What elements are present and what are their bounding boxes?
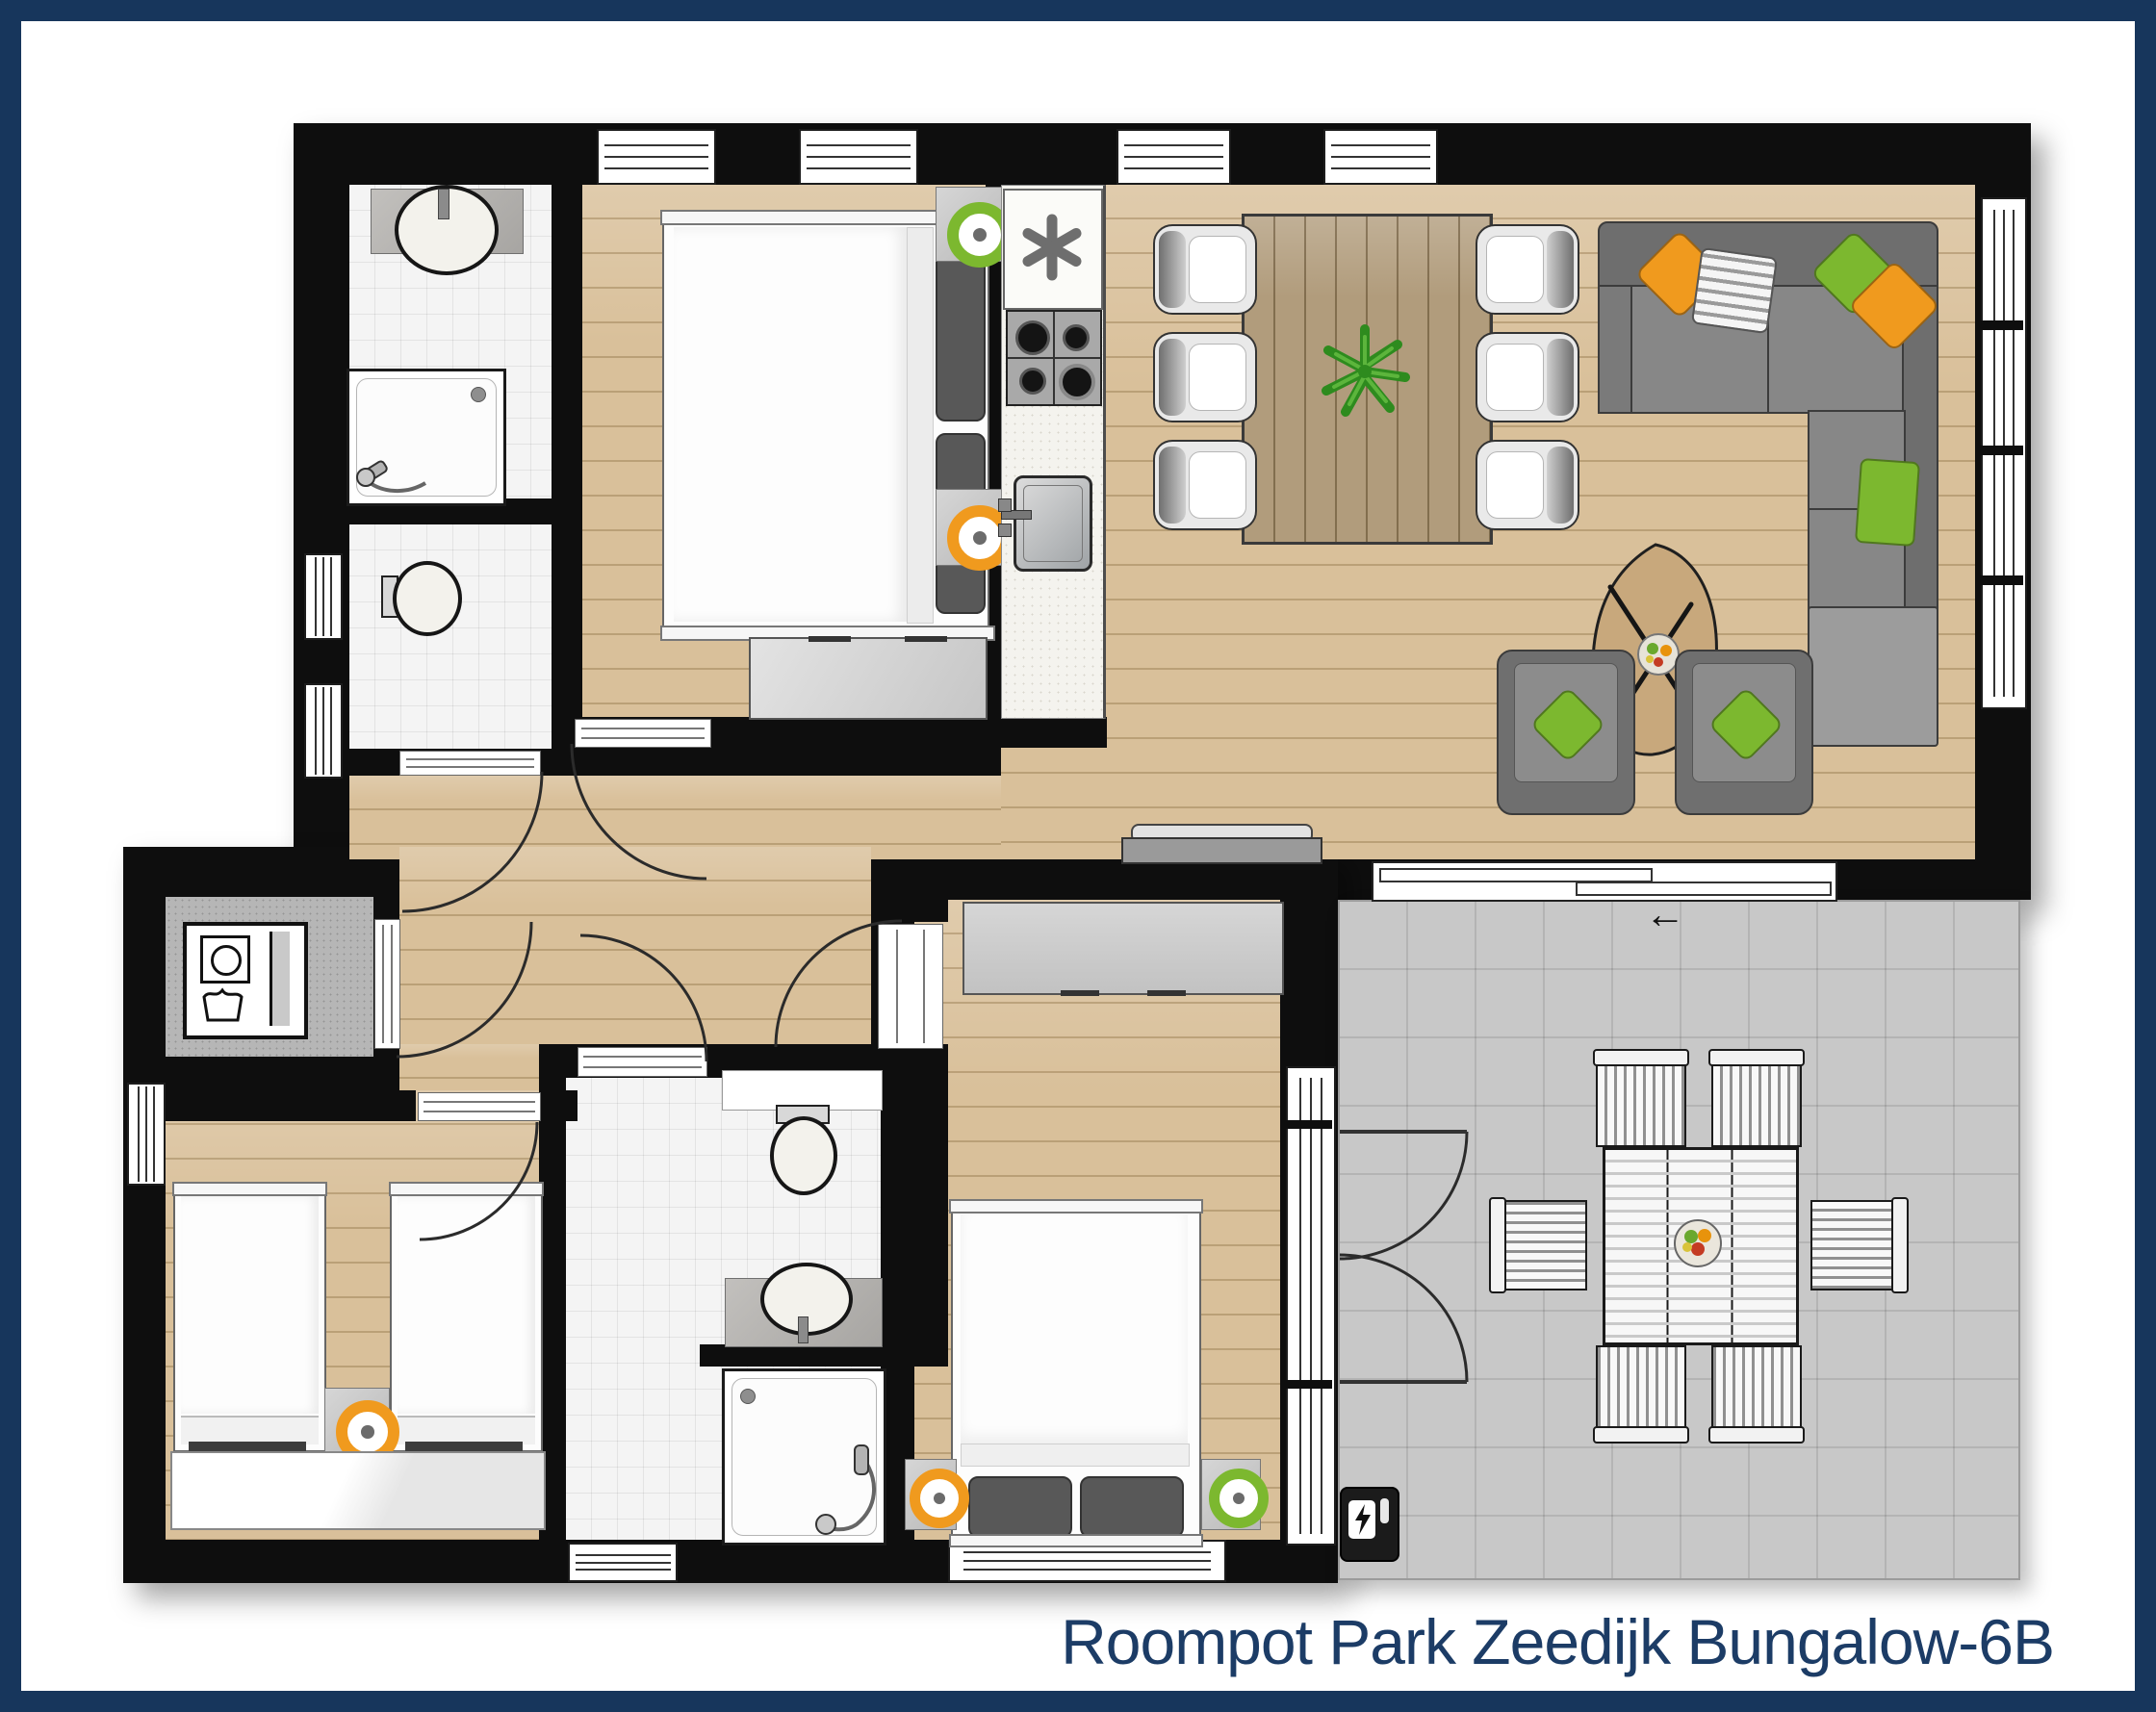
bed1-pillow-top [936,241,986,422]
door-arc-bedroom2 [420,1122,537,1239]
kitchen-faucet-knob [998,498,1012,512]
window-top-2 [799,129,918,185]
wall-bathroom2-top-a [539,1044,577,1078]
window-top-3 [1116,129,1231,185]
terrace-chair [1711,1059,1802,1147]
dining-plant-icon [1311,318,1419,425]
bed-duvet-fold [961,1444,1190,1467]
door-arc-bathroom2 [580,935,706,1061]
wardrobe-handle [1061,990,1099,996]
dining-chair [1476,440,1579,530]
dresser-handle [808,636,851,642]
burner-icon [1059,364,1095,400]
bed-rail [172,1182,327,1196]
toilet2-bowl [770,1116,837,1195]
page-title: Roompot Park Zeedijk Bungalow-6B [1061,1605,2054,1678]
bathroom2-showerhead-icon [807,1444,884,1536]
burner-icon [1019,368,1046,395]
terrace-chair [1810,1200,1899,1290]
bedroom3-wardrobe [962,902,1284,995]
kitchen-faucet-knob [998,524,1012,537]
washer-garment-icon [198,985,248,1026]
terrace-fruit-bowl-icon [1672,1217,1724,1269]
window-left-lower [127,1083,166,1186]
bed1-mattress [674,227,907,622]
bathroom1-faucet-icon [438,189,449,219]
bedroom3-lamp-green-icon [1209,1469,1269,1528]
window-top-1 [597,129,716,185]
bed1-duvet-fold [907,227,934,624]
armchair [1675,650,1813,815]
bedroom2-desk [170,1451,546,1530]
bed3-pillow [968,1476,1072,1538]
washer-drum-icon [200,935,250,984]
wall-bedroom2-top-a [123,1090,416,1121]
window-right-mullion-2 [1981,446,2023,455]
window-top-4 [1323,129,1438,185]
freezer-icon [1018,214,1086,281]
bedroom3-bed [951,1203,1201,1546]
sliding-door [1372,861,1837,902]
tv-screen [1121,837,1322,864]
toilet1-bowl [393,561,462,636]
dining-chair [1476,332,1579,422]
door-bedroom2 [418,1092,541,1121]
bedroom3-lamp-orange-icon [910,1469,969,1528]
bedroom2-bed-left [173,1187,326,1452]
charging-station-icon [1351,1502,1374,1539]
sofa-pillow-striped [1691,247,1778,334]
wall-bathroom1-right [552,185,582,775]
wall-utility-right-a [373,897,399,919]
window-right-mullion-1 [1981,320,2023,330]
window-bedroom3-terrace [1286,1066,1336,1546]
bedroom1-bed [662,214,989,637]
kitchen-stove [1006,310,1102,406]
wall-shower2-stub [700,1344,883,1367]
floorplan-canvas: ← [0,0,2156,1712]
terrace-door-mullion-1 [1286,1120,1332,1129]
window-right-mullion-3 [1981,575,2023,585]
dining-chair [1153,224,1257,315]
burner-icon [1015,320,1050,355]
door-arc-bedroom3 [776,921,902,1047]
sofa-arm-left [1598,285,1634,414]
kitchen-sink [1014,475,1092,572]
sofa-pillow-green-small [1855,458,1920,547]
dining-chair [1476,224,1579,315]
toilet-room-floor [349,524,552,749]
dresser-handle [905,636,947,642]
door-arc-toilet-room [402,772,542,911]
window-left-2 [304,683,343,779]
bed-rail [949,1199,1203,1214]
door-arc-bedroom1 [572,744,706,879]
bed-mattress [961,1214,1188,1444]
bed-foot [398,1416,535,1444]
terrace-door-mullion-2 [1286,1380,1332,1389]
sofa-ottoman [1808,606,1938,747]
bed-foot [181,1416,319,1444]
wall-bedroom1-bottom-b [709,717,1107,748]
burner-icon [1063,324,1090,351]
armchair [1497,650,1635,815]
dining-chair [1153,440,1257,530]
bathroom1-showerhead-icon [358,445,435,498]
window-left-1 [304,553,343,640]
bedroom1-dresser [749,637,988,720]
sink-basin [1023,485,1083,562]
bed3-pillow [1080,1476,1184,1538]
terrace-chair [1499,1200,1587,1290]
terrace-chair [1596,1345,1686,1434]
washing-machine [183,922,308,1039]
charging-nozzle-icon [1380,1498,1389,1523]
sliding-door-leaf-1 [1379,868,1653,882]
terrace-chair [1596,1059,1686,1147]
terrace-french-door-top [1340,1132,1467,1259]
window-bottom-bathroom2 [568,1543,678,1582]
washer-door-band [269,932,290,1026]
bathroom2-faucet-icon [798,1316,808,1343]
wall-bathroom2-right [881,1049,948,1367]
dining-chair [1153,332,1257,422]
charging-station [1340,1487,1399,1562]
wardrobe-handle [1147,990,1186,996]
sliding-door-leaf-2 [1576,882,1832,896]
terrace-chair [1711,1345,1802,1434]
wall-bedroom3-left-top [871,859,948,922]
slide-direction-arrow-icon: ← [1627,893,1704,935]
bed-mattress [181,1196,319,1414]
terrace-french-door-bottom [1340,1255,1467,1382]
bed-foot-rail [949,1534,1203,1547]
door-arc-utility [397,922,531,1057]
